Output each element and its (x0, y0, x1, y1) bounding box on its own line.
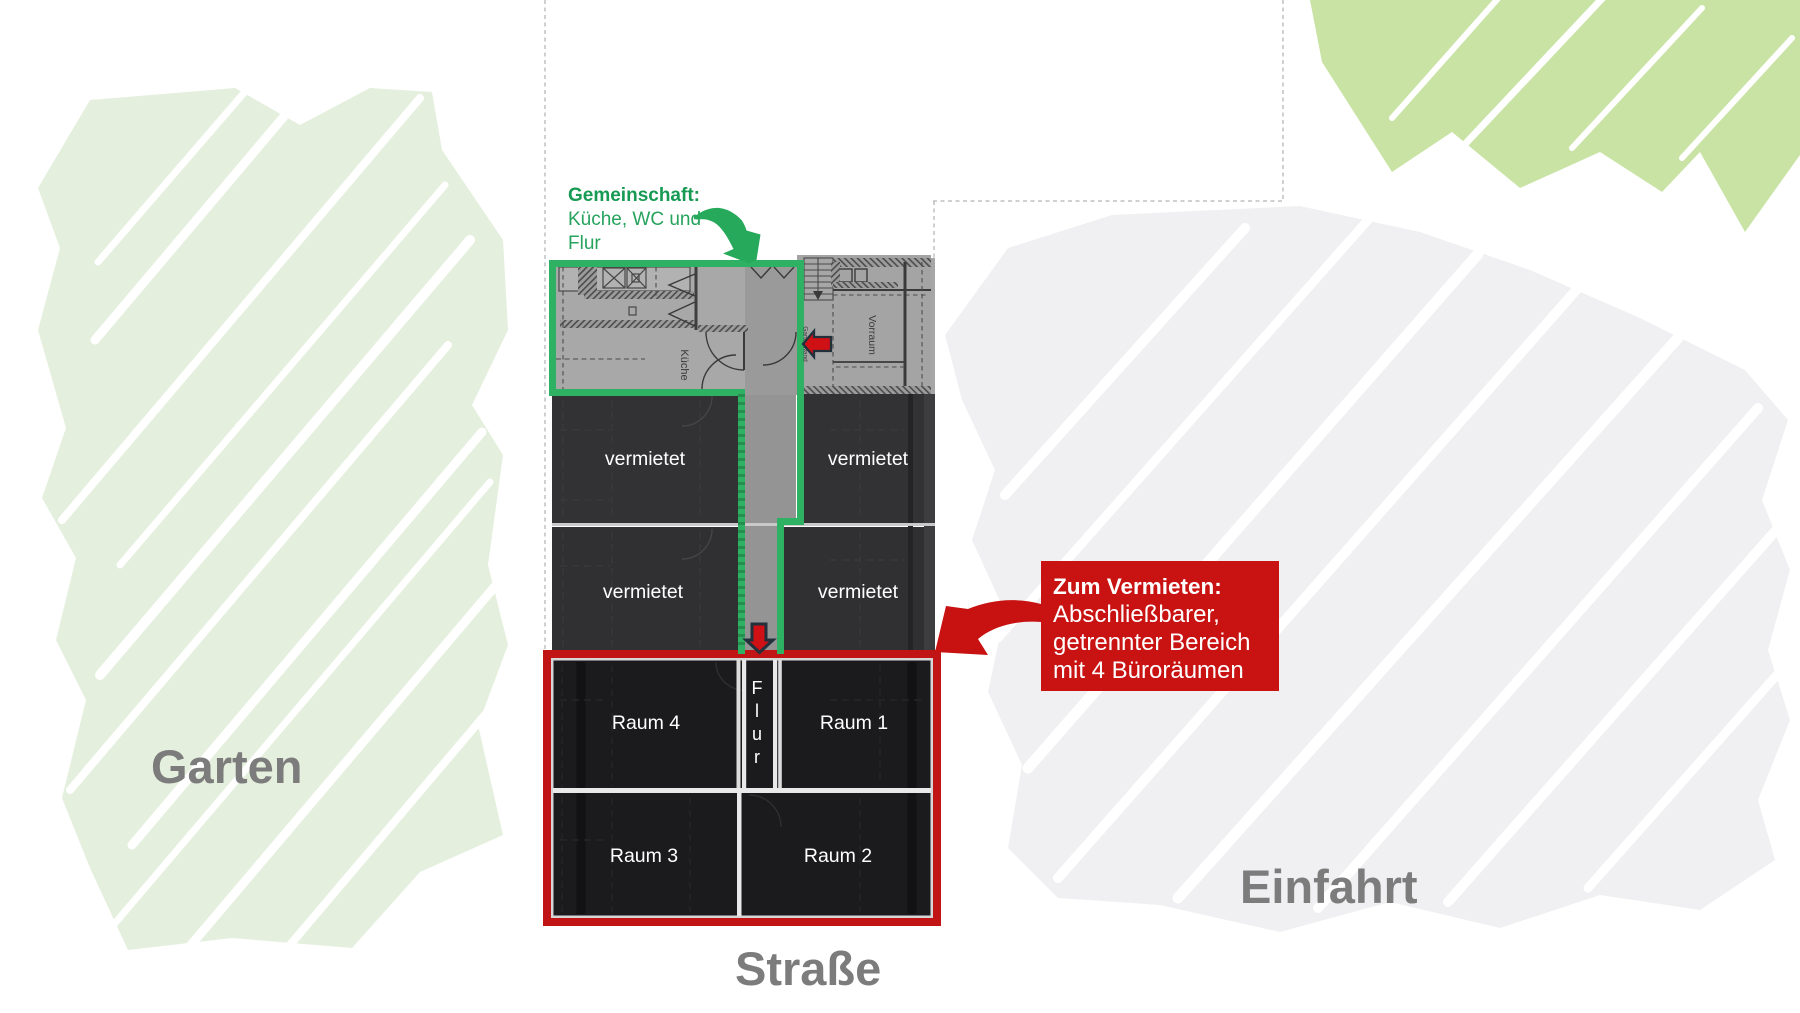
svg-text:Zum Vermieten:: Zum Vermieten: (1053, 574, 1222, 599)
svg-text:vermietet: vermietet (605, 448, 686, 470)
svg-text:r: r (754, 747, 760, 767)
svg-text:Flur: Flur (568, 233, 601, 254)
svg-text:Küche: Küche (678, 349, 690, 380)
svg-text:Abschließbarer,: Abschließbarer, (1053, 601, 1220, 628)
svg-text:Raum 2: Raum 2 (804, 845, 872, 867)
svg-text:Raum 3: Raum 3 (610, 845, 678, 867)
svg-text:Straße: Straße (735, 942, 881, 995)
svg-text:Garten: Garten (151, 740, 303, 793)
svg-text:Vorraum: Vorraum (866, 315, 878, 355)
svg-text:Raum 1: Raum 1 (820, 712, 888, 734)
svg-text:mit 4 Büroräumen: mit 4 Büroräumen (1053, 657, 1244, 684)
svg-text:vermietet: vermietet (818, 581, 899, 603)
svg-text:getrennter Bereich: getrennter Bereich (1053, 629, 1250, 656)
svg-text:l: l (755, 701, 759, 721)
svg-text:vermietet: vermietet (828, 448, 909, 470)
svg-text:u: u (752, 724, 762, 744)
svg-text:Küche, WC und: Küche, WC und (568, 209, 701, 230)
svg-text:F: F (752, 678, 763, 698)
svg-text:vermietet: vermietet (603, 581, 684, 603)
svg-text:Raum 4: Raum 4 (612, 712, 680, 734)
svg-text:Gemeinschaft:: Gemeinschaft: (568, 185, 700, 206)
svg-text:Einfahrt: Einfahrt (1240, 860, 1418, 913)
